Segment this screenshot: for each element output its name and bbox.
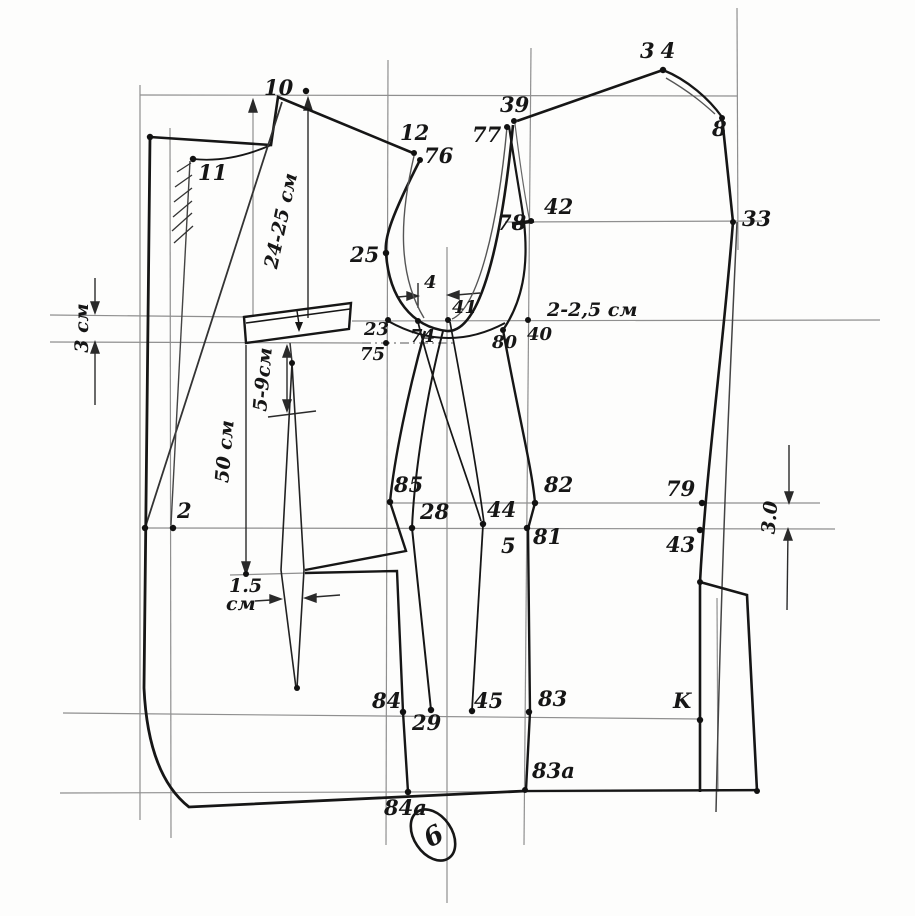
dot-33 (730, 219, 736, 225)
dim-3-0-lower-tail (787, 531, 788, 610)
label-28: 28 (419, 499, 450, 524)
label-43: 43 (666, 532, 695, 557)
label-dim-5-9: 5-9см (249, 347, 276, 413)
label-84a: 84a (383, 795, 427, 820)
label-25: 25 (349, 242, 379, 267)
dot-74 (415, 318, 421, 324)
arrow-left-1-5 (305, 594, 316, 602)
construction-pocket-lower-line (50, 342, 362, 343)
label-23: 23 (363, 319, 389, 340)
label-dim-1-5-unit: см (226, 593, 256, 615)
arrow-up-253 (249, 100, 257, 112)
dot-vent-top (697, 579, 703, 585)
label-78: 78 (497, 210, 527, 235)
pocket-arrow-head (295, 322, 303, 332)
dot-11 (190, 156, 196, 162)
dot-42 (528, 218, 534, 224)
dot-dart-bottom (294, 685, 300, 691)
label-76: 76 (424, 143, 454, 168)
arrow-down-3-0 (785, 492, 793, 503)
label-34: 34 (640, 38, 681, 63)
dim-1-5-left-tail (255, 600, 271, 601)
label-8: 8 (711, 116, 727, 141)
underarm-seam-80-83a (503, 330, 535, 790)
sheet-number-text: 6 (419, 819, 450, 854)
construction-right-edge-vertical (737, 8, 738, 250)
waist-dart-left-edge (281, 363, 296, 688)
construction-knee-line (63, 713, 700, 719)
label-83: 83 (537, 686, 567, 711)
dim-5-9-cross-tick (268, 411, 316, 417)
dot-12 (411, 150, 417, 156)
label-12: 12 (400, 120, 429, 145)
pattern-draft-canvas: 10 11 12 76 25 23 74 75 41 4 80 40 39 77… (0, 0, 915, 916)
arrow-right-1-5 (270, 595, 281, 603)
front-piece-outline (144, 97, 525, 807)
label-dim-3-0: 3.0 (758, 500, 783, 535)
construction-back-chest-line (505, 221, 762, 222)
panel-seam-44-45 (472, 525, 483, 710)
back-right-edge (700, 117, 733, 792)
label-dim-24-25: 24-25 см (260, 171, 302, 271)
construction-front-edge-vertical (170, 128, 171, 838)
front-neck-curve (193, 145, 271, 160)
dot-2 (170, 525, 176, 531)
label-75: 75 (360, 344, 385, 365)
dot-40 (525, 317, 531, 323)
label-4: 4 (424, 272, 437, 293)
dot-85 (387, 499, 393, 505)
label-dim-2-25: 2-2,5 см (546, 299, 637, 321)
dot-vent-bottom (754, 788, 760, 794)
dot-43 (697, 527, 703, 533)
label-39: 39 (500, 92, 530, 117)
label-42: 42 (544, 194, 573, 219)
dot-79 (699, 500, 705, 506)
arrow-up-3-0 (784, 529, 792, 540)
construction-top-line (140, 95, 737, 96)
dot-76 (417, 157, 423, 163)
front-edge-and-hem (144, 137, 525, 807)
side-wedge-lower-edge (305, 571, 408, 792)
dot-10 (303, 88, 309, 94)
front-darts (281, 363, 304, 688)
dot-39 (511, 118, 517, 124)
label-74: 74 (410, 326, 435, 347)
label-K: K (672, 688, 692, 713)
label-45: 45 (474, 688, 503, 713)
label-81: 81 (532, 524, 562, 549)
dot-83a (522, 787, 528, 793)
label-79: 79 (666, 476, 696, 501)
dot-83 (526, 709, 532, 715)
label-77: 77 (472, 122, 502, 147)
label-10: 10 (264, 75, 294, 100)
dim-1-5-right-tail (314, 595, 340, 597)
dot-shoulder-left (147, 134, 153, 140)
pattern-draft-sheet: 10 11 12 76 25 23 74 75 41 4 80 40 39 77… (0, 0, 915, 916)
dot-K (697, 717, 703, 723)
label-2: 2 (176, 498, 192, 523)
label-40: 40 (527, 324, 553, 345)
panel-seam-74-44 (418, 322, 481, 521)
dot-41 (445, 317, 451, 323)
back-neck-curve-outer (663, 70, 722, 117)
dot-77 (504, 124, 510, 130)
dot-dart-apex (289, 360, 295, 366)
label-11: 11 (198, 160, 227, 185)
dot-25 (383, 250, 389, 256)
label-29: 29 (411, 710, 442, 735)
dot-81 (524, 525, 530, 531)
label-83a: 83a (531, 758, 575, 783)
dot-lapel-front (142, 525, 148, 531)
panel-seam-41-44 (450, 322, 484, 523)
construction-hip-lower-line (143, 528, 835, 529)
label-33: 33 (742, 206, 771, 231)
label-84: 84 (371, 688, 401, 713)
label-dim-3: 3 см (71, 303, 93, 352)
label-dim-50: 50 см (211, 419, 238, 483)
side-seam-85 (305, 331, 425, 570)
label-5: 5 (501, 533, 516, 558)
waist-dart-right-edge (292, 363, 304, 688)
label-85: 85 (393, 472, 423, 497)
label-80: 80 (491, 332, 518, 353)
back-vent-step (700, 582, 757, 791)
dot-82 (532, 500, 538, 506)
dot-44 (480, 521, 486, 527)
construction-center-front-vertical (386, 60, 388, 845)
back-seam-companion (716, 222, 737, 812)
pocket-to-dart-stem (290, 343, 292, 362)
dot-28 (409, 525, 415, 531)
dot-34 (660, 67, 666, 73)
label-44: 44 (487, 497, 516, 522)
label-82: 82 (543, 472, 573, 497)
label-41: 41 (452, 297, 477, 318)
back-hem-line (525, 790, 757, 791)
